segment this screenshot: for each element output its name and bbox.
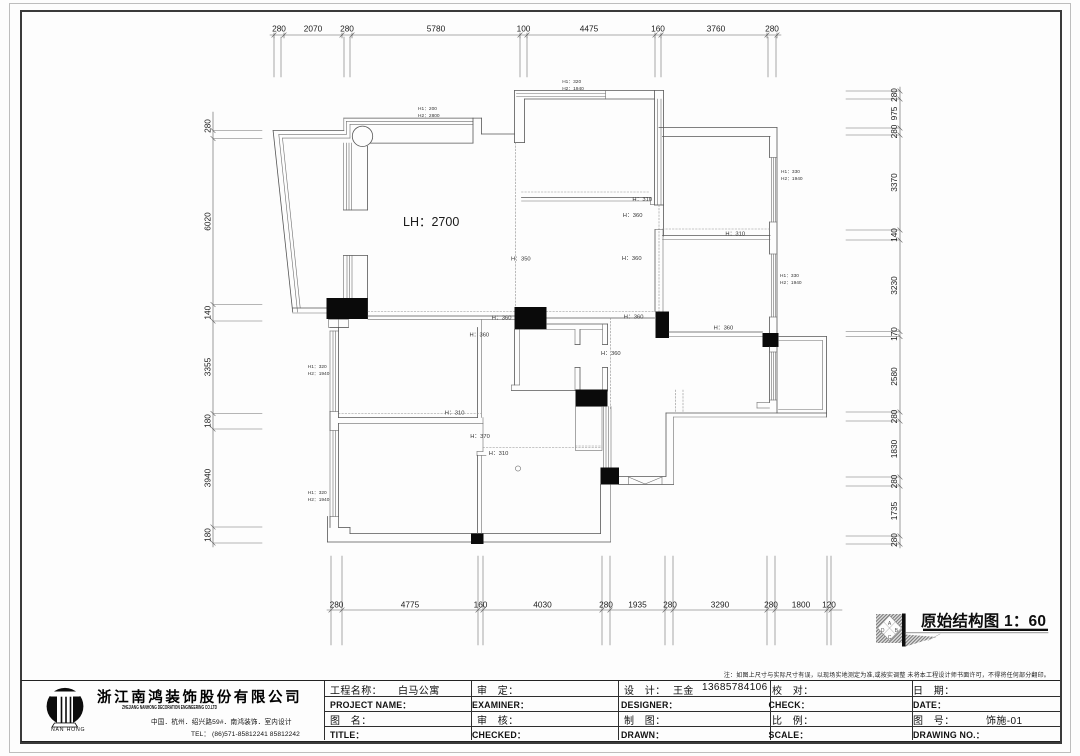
svg-text:280: 280 [272, 24, 286, 34]
svg-text:975: 975 [889, 106, 899, 120]
svg-text:6020: 6020 [203, 212, 213, 231]
svg-text:280: 280 [330, 600, 344, 610]
svg-text:5780: 5780 [427, 24, 446, 34]
svg-text:120: 120 [822, 600, 836, 610]
svg-text:4775: 4775 [401, 600, 420, 610]
svg-text:H1：320: H1：320 [562, 79, 581, 85]
svg-text:H：360: H：360 [623, 213, 643, 219]
svg-text:H：350: H：350 [511, 257, 531, 263]
svg-text:3290: 3290 [711, 600, 730, 610]
svg-text:100: 100 [517, 24, 531, 34]
svg-text:1735: 1735 [889, 501, 899, 520]
svg-text:H2：1940: H2：1940 [781, 176, 803, 182]
svg-text:H：310: H：310 [445, 411, 465, 417]
svg-text:H：310: H：310 [725, 232, 745, 238]
svg-text:H1：320: H1：320 [308, 364, 327, 370]
svg-text:H1：320: H1：320 [308, 490, 327, 496]
svg-text:280: 280 [889, 409, 899, 423]
svg-text:H：310: H：310 [632, 197, 652, 203]
svg-text:H2：1940: H2：1940 [308, 371, 330, 377]
svg-text:4030: 4030 [533, 600, 552, 610]
svg-text:C: C [888, 635, 892, 641]
svg-text:H1：330: H1：330 [781, 169, 800, 175]
svg-text:H：310: H：310 [489, 451, 509, 457]
svg-text:H：360: H：360 [622, 256, 642, 262]
svg-text:140: 140 [203, 305, 213, 319]
svg-text:H2：1940: H2：1940 [780, 280, 802, 286]
svg-text:LH：2700: LH：2700 [403, 215, 459, 229]
svg-text:4475: 4475 [580, 24, 599, 34]
svg-text:D: D [881, 628, 885, 634]
svg-text:280: 280 [889, 124, 899, 138]
svg-text:280: 280 [889, 474, 899, 488]
svg-text:140: 140 [889, 228, 899, 242]
svg-text:H1：200: H1：200 [418, 106, 437, 112]
svg-text:3940: 3940 [203, 468, 213, 487]
svg-text:160: 160 [651, 24, 665, 34]
svg-text:2070: 2070 [304, 24, 323, 34]
svg-text:280: 280 [889, 533, 899, 547]
svg-text:1830: 1830 [889, 439, 899, 458]
svg-text:H2：2800: H2：2800 [418, 113, 440, 119]
svg-text:280: 280 [599, 600, 613, 610]
svg-text:3760: 3760 [707, 24, 726, 34]
svg-text:180: 180 [203, 528, 213, 542]
svg-text:280: 280 [663, 600, 677, 610]
svg-text:H：360: H：360 [624, 315, 644, 321]
svg-text:H2：1940: H2：1940 [562, 86, 584, 92]
svg-text:280: 280 [203, 119, 213, 133]
svg-text:160: 160 [474, 600, 488, 610]
svg-text:2580: 2580 [889, 367, 899, 386]
svg-text:H1：330: H1：330 [780, 273, 799, 279]
svg-text:H：360: H：360 [601, 351, 621, 357]
svg-text:180: 180 [203, 414, 213, 428]
svg-text:1935: 1935 [628, 600, 647, 610]
svg-text:H：360: H：360 [714, 326, 734, 332]
svg-text:170: 170 [889, 327, 899, 341]
svg-text:280: 280 [765, 24, 779, 34]
svg-text:H：370: H：370 [470, 434, 490, 440]
svg-text:3230: 3230 [889, 276, 899, 295]
svg-text:280: 280 [764, 600, 778, 610]
svg-text:280: 280 [340, 24, 354, 34]
svg-text:H：360: H：360 [470, 333, 490, 339]
svg-text:3370: 3370 [889, 173, 899, 192]
svg-text:H：360: H：360 [492, 316, 512, 322]
svg-text:280: 280 [889, 88, 899, 102]
svg-text:1800: 1800 [792, 600, 811, 610]
svg-text:3355: 3355 [203, 357, 213, 376]
svg-text:H2：1940: H2：1940 [308, 497, 330, 503]
svg-text:原始结构图 1：60: 原始结构图 1：60 [921, 611, 1046, 630]
